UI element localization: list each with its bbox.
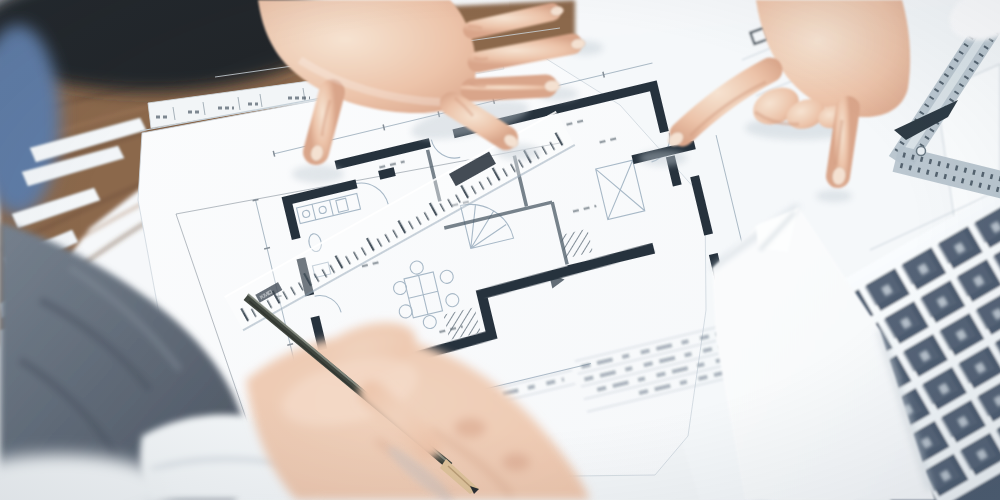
vignette-overlay <box>0 0 1000 500</box>
scene-illustration: KMD <box>0 0 1000 500</box>
photo-canvas: KMD <box>0 0 1000 500</box>
